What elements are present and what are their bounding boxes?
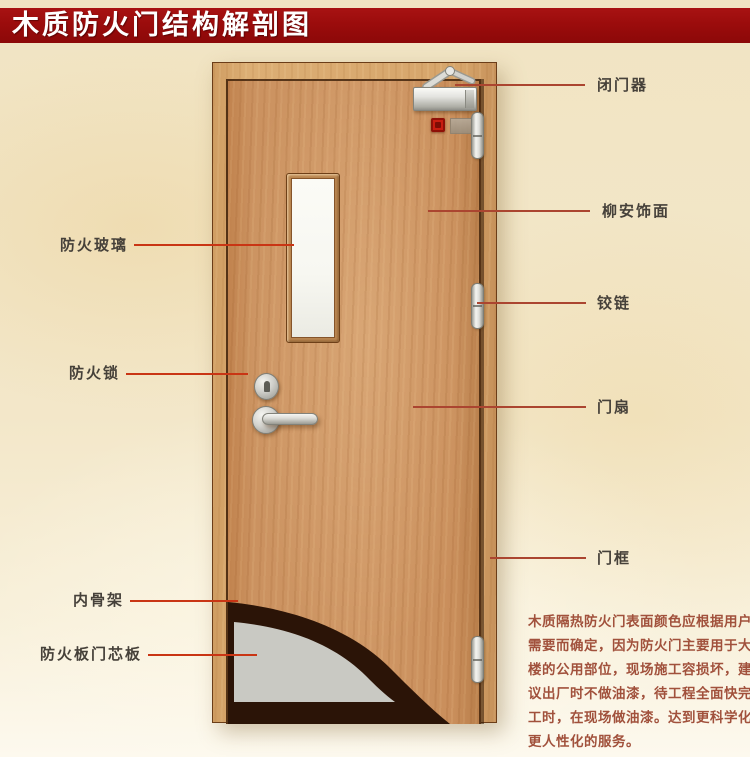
alarm-indicator — [431, 118, 445, 132]
leader-inner-skeleton — [130, 600, 238, 602]
leader-door-leaf — [413, 406, 586, 408]
hinge-middle — [471, 283, 484, 329]
leader-hinge — [477, 302, 586, 304]
label-lauan-veneer: 柳安饰面 — [602, 204, 670, 219]
door-leaf — [226, 79, 481, 724]
title-banner: 木质防火门结构解剖图 — [0, 8, 750, 43]
label-core-board: 防火板门芯板 — [40, 647, 142, 662]
page-title: 木质防火门结构解剖图 — [0, 12, 312, 39]
door-closer-body — [413, 87, 477, 111]
leader-fire-lock — [126, 373, 248, 375]
label-door-frame: 门框 — [597, 551, 631, 566]
hinge-top — [471, 112, 484, 159]
description-line: 工时，在现场做油漆。达到更科学化 — [528, 706, 750, 730]
diagram-stage: 木质防火门结构解剖图 — [0, 0, 750, 757]
label-hinge: 铰链 — [597, 296, 631, 311]
leader-door-frame — [490, 557, 586, 559]
description-line: 议出厂时不做油漆，待工程全面快完 — [528, 682, 750, 706]
nameplate — [450, 118, 472, 134]
door-frame — [212, 62, 497, 723]
description-line: 楼的公用部位，现场施工容损坏，建 — [528, 658, 750, 682]
fire-glass — [291, 178, 335, 338]
cutaway-section — [228, 596, 483, 724]
vision-panel — [286, 173, 340, 343]
label-door-leaf: 门扇 — [597, 400, 631, 415]
label-fire-lock: 防火锁 — [69, 366, 120, 381]
handle-lever — [262, 413, 318, 425]
label-door-closer: 闭门器 — [597, 78, 648, 93]
description-line: 需要而确定，因为防火门主要用于大 — [528, 634, 750, 658]
hinge-bottom — [471, 636, 484, 683]
label-inner-skeleton: 内骨架 — [73, 593, 124, 608]
lock-cylinder — [254, 373, 279, 400]
description-line: 更人性化的服务。 — [528, 730, 750, 754]
leader-door-closer — [455, 84, 585, 86]
description-line: 木质隔热防火门表面颜色应根据用户 — [528, 610, 750, 634]
description-text: 木质隔热防火门表面颜色应根据用户 需要而确定，因为防火门主要用于大 楼的公用部位… — [528, 610, 750, 754]
leader-fire-glass — [134, 244, 294, 246]
label-fire-glass: 防火玻璃 — [60, 238, 128, 253]
leader-core-board — [148, 654, 257, 656]
leader-lauan-veneer — [428, 210, 590, 212]
